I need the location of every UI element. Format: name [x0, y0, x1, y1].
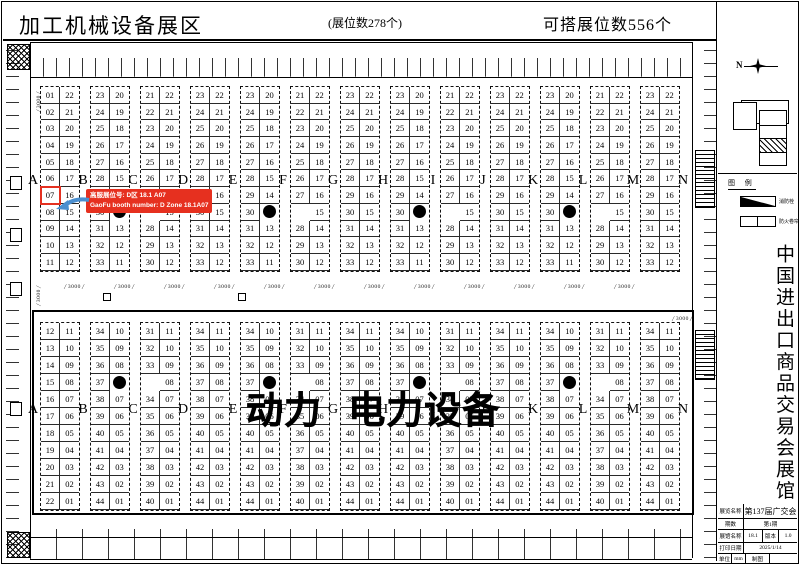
tb-label: 展馆名称: [718, 530, 744, 542]
tb-value: mm: [732, 554, 746, 564]
booth-cell: 19: [410, 104, 429, 121]
pillar-dot: [263, 205, 276, 218]
booth-cell: 14: [160, 221, 179, 238]
fire-hydrant-symbol: [740, 196, 776, 207]
booth-cell: 15: [660, 204, 679, 221]
booth-cell: [591, 204, 610, 221]
booth-cell: 26: [591, 170, 610, 187]
booth-cell: 26: [191, 137, 210, 154]
booth-cell: 23: [241, 87, 260, 104]
booth-cell: 20: [110, 87, 129, 104]
booth-cell: 29: [391, 187, 410, 204]
compass-star-icon: [750, 58, 766, 74]
booth-cell: 21: [660, 104, 679, 121]
booth-cell: [260, 204, 279, 221]
top-group-11: 2320241925182617271628152914303113321233…: [540, 86, 580, 272]
booth-cell: 20: [510, 120, 529, 137]
booth-cell: 19: [360, 137, 379, 154]
tb-value: 18.1: [744, 530, 763, 542]
top-group-13: 2322242125202619271828172916301531143213…: [640, 86, 680, 272]
booth-cell: 19: [610, 137, 629, 154]
booth-cell: 14: [260, 187, 279, 204]
booth-cell: 16: [410, 154, 429, 171]
dimension-label: 3000: [214, 284, 235, 290]
booth-cell: 11: [410, 254, 429, 271]
booth-cell: 25: [391, 120, 410, 137]
booth-cell: 16: [560, 154, 579, 171]
booth-cell: 20: [310, 120, 329, 137]
legend-item-label: 消防栓: [779, 198, 794, 205]
booth-cell: 15: [310, 204, 329, 221]
callout-line-cn: 高服展位号: D区 18.1 A07: [90, 191, 208, 201]
booth-cell: 20: [260, 87, 279, 104]
booth-cell: 19: [310, 137, 329, 154]
booth-cell: 23: [491, 87, 510, 104]
booth-cell: 23: [641, 87, 660, 104]
booth-count-label: (展位数278个): [328, 14, 402, 31]
booth-cell: 04: [41, 137, 60, 154]
booth-cell: 20: [660, 120, 679, 137]
booth-cell: 12: [560, 237, 579, 254]
fire-equipment-symbol: [103, 293, 111, 301]
booth-cell: 13: [310, 237, 329, 254]
booth-cell: 12: [310, 254, 329, 271]
dimension-label: 3000: [314, 284, 335, 290]
tb-label: 展览名称: [718, 504, 744, 518]
booth-cell: 25: [141, 154, 160, 171]
booth-cell: 23: [291, 120, 310, 137]
booth-cell: 21: [291, 87, 310, 104]
booth-cell: 13: [260, 221, 279, 238]
booth-cell: 29: [341, 187, 360, 204]
booth-cell: 28: [191, 170, 210, 187]
booth-cell: 16: [360, 187, 379, 204]
booth-cell: 33: [191, 254, 210, 271]
booth-cell: 20: [60, 120, 79, 137]
booth-cell: 22: [160, 87, 179, 104]
top-group-3: 2122222123202419251826172716152814291330…: [140, 86, 180, 272]
top-zone-letter-E: E: [225, 173, 241, 189]
booth-cell: 33: [641, 254, 660, 271]
booth-cell: 13: [560, 221, 579, 238]
dimension-label: 3000: [514, 284, 535, 290]
title-block-row: 展览名称 第137届广交会: [718, 504, 797, 519]
booth-cell: 30: [291, 254, 310, 271]
booth-cell: 24: [341, 104, 360, 121]
booth-cell: 13: [60, 237, 79, 254]
top-zone-letter-G: G: [325, 173, 341, 189]
booth-cell: 21: [360, 104, 379, 121]
booth-cell: 26: [91, 137, 110, 154]
booth-cell: 30: [491, 204, 510, 221]
booth-cell: 18: [60, 154, 79, 171]
booth-cell: 19: [210, 137, 229, 154]
top-group-4: 2322242125202619271828172916301531143213…: [190, 86, 230, 272]
booth-cell: 29: [141, 237, 160, 254]
booth-cell: 27: [441, 187, 460, 204]
top-group-2: 2320241925182617271628152914303113321233…: [90, 86, 130, 272]
booth-cell: 25: [341, 120, 360, 137]
tb-label: 打印日期: [718, 543, 744, 553]
booth-cell: 14: [560, 187, 579, 204]
booth-cell: 30: [591, 254, 610, 271]
booth-cell: 21: [210, 104, 229, 121]
booth-cell: 14: [660, 221, 679, 238]
dimension-label: 3000: [264, 284, 285, 290]
booth-cell: 12: [110, 237, 129, 254]
booth-cell: 19: [110, 104, 129, 121]
booth-cell: 27: [91, 154, 110, 171]
booth-cell: 14: [310, 221, 329, 238]
booth-cell: 25: [91, 120, 110, 137]
booth-cell: 18: [510, 154, 529, 171]
booth-cell: 19: [660, 137, 679, 154]
booth-cell: 24: [391, 104, 410, 121]
top-group-10: 2322242125202619271828172916301531143213…: [490, 86, 530, 272]
keyplan-hall-column: [759, 110, 787, 166]
booth-cell: 26: [291, 170, 310, 187]
booth-cell: 22: [360, 87, 379, 104]
booth-cell: 27: [291, 187, 310, 204]
tb-value: 2025/1/14: [744, 543, 797, 553]
booth-cell: 29: [641, 187, 660, 204]
booth-cell: 21: [60, 104, 79, 121]
booth-cell: 28: [591, 221, 610, 238]
booth-cell: 14: [510, 221, 529, 238]
booth-cell: 31: [641, 221, 660, 238]
booth-cell: 11: [110, 254, 129, 271]
keyplan-hall: [760, 152, 786, 166]
booth-cell: 09: [41, 221, 60, 238]
booth-cell: 12: [160, 254, 179, 271]
tb-value: [770, 554, 797, 564]
booth-cell: 33: [91, 254, 110, 271]
booth-cell: 20: [560, 87, 579, 104]
booth-cell: 28: [341, 170, 360, 187]
pillar-dot: [413, 205, 426, 218]
booth-cell: 29: [491, 187, 510, 204]
title-block: 展览名称 第137届广交会 期数 第1期 展馆名称 18.1 版本 1.0 打印…: [718, 504, 797, 562]
top-zone-letter-M: M: [625, 173, 641, 189]
booth-cell: 01: [41, 87, 60, 104]
booth-cell: 22: [441, 104, 460, 121]
booth-cell: 24: [541, 104, 560, 121]
booth-cell: 22: [510, 87, 529, 104]
booth-cell: 15: [510, 204, 529, 221]
dimension-label-vertical: 3000: [36, 91, 42, 112]
booth-cell: 27: [391, 154, 410, 171]
booth-cell: 23: [191, 87, 210, 104]
booth-cell: 14: [360, 221, 379, 238]
booth-cell: 32: [91, 237, 110, 254]
booth-cell: 20: [460, 120, 479, 137]
booth-cell: 25: [641, 120, 660, 137]
booth-cell: 32: [541, 237, 560, 254]
booth-cell: 26: [241, 137, 260, 154]
booth-cell: 24: [591, 137, 610, 154]
booth-cell: 23: [541, 87, 560, 104]
booth-cell: 16: [660, 187, 679, 204]
booth-cell: 18: [110, 120, 129, 137]
booth-cell: 26: [641, 137, 660, 154]
top-zone-letter-I: I: [425, 173, 441, 189]
dimension-label: 3000: [414, 284, 435, 290]
booth-cell: 24: [141, 137, 160, 154]
booth-cell: 29: [591, 237, 610, 254]
booth-cell: 27: [491, 154, 510, 171]
tb-value: 第137届广交会: [744, 504, 797, 518]
booth-cell: 13: [160, 237, 179, 254]
booth-cell: 12: [510, 254, 529, 271]
booth-cell: 18: [410, 120, 429, 137]
booth-cell: 32: [491, 237, 510, 254]
booth-cell: 28: [491, 170, 510, 187]
booth-cell: 31: [541, 221, 560, 238]
fire-shutter-symbol: [740, 216, 776, 227]
booth-cell: 12: [60, 254, 79, 271]
booth-cell: 21: [460, 104, 479, 121]
booth-cell: 14: [460, 221, 479, 238]
booth-cell: 24: [441, 137, 460, 154]
booth-cell: 15: [210, 204, 229, 221]
booth-cell: 21: [591, 87, 610, 104]
booth-cell: 14: [410, 187, 429, 204]
booth-cell: 15: [610, 204, 629, 221]
booth-cell: 26: [341, 137, 360, 154]
booth-cell: 17: [260, 137, 279, 154]
top-zone-letter-H: H: [375, 173, 391, 189]
booth-cell: 18: [360, 154, 379, 171]
booth-cell: 31: [91, 221, 110, 238]
booth-cell: 30: [241, 204, 260, 221]
booth-cell: 27: [191, 154, 210, 171]
tb-label: 期数: [718, 519, 744, 529]
booth-cell: 12: [460, 254, 479, 271]
booth-cell: 17: [110, 137, 129, 154]
title-block-row: 打印日期 2025/1/14: [718, 543, 797, 554]
booth-cell: 12: [660, 254, 679, 271]
booth-cell: 24: [241, 104, 260, 121]
booth-cell: 23: [441, 120, 460, 137]
floor-plan-drawing: 加工机械设备展区 (展位数278个) 可搭展位数556个 01220221032…: [0, 0, 800, 565]
booth-cell: 25: [541, 120, 560, 137]
booth-cell: 21: [610, 104, 629, 121]
top-group-8: 2320241925182617271628152914303113321233…: [390, 86, 430, 272]
booth-cell: 22: [591, 104, 610, 121]
booth-cell: 22: [660, 87, 679, 104]
booth-cell: 26: [391, 137, 410, 154]
legend-title: 图 例: [728, 178, 756, 190]
booth-cell: 13: [510, 237, 529, 254]
booth-cell: 16: [110, 154, 129, 171]
booth-cell: 19: [510, 137, 529, 154]
tb-value: 第1期: [744, 519, 797, 529]
booth-cell: 30: [141, 254, 160, 271]
buildable-count-label: 可搭展位数556个: [543, 11, 672, 35]
booth-cell: 27: [591, 187, 610, 204]
dimension-label-vertical: 3000: [36, 285, 42, 306]
booth-cell: 15: [460, 204, 479, 221]
booth-callout: 高服展位号: D区 18.1 A07 GaoFu booth number: D…: [86, 189, 212, 213]
fire-equipment-symbol: [238, 293, 246, 301]
booth-cell: 16: [510, 187, 529, 204]
keyplan-hall: [760, 111, 786, 125]
top-group-12: 2122222123202419251826172716152814291330…: [590, 86, 630, 272]
booth-cell: 29: [241, 187, 260, 204]
booth-cell: [441, 204, 460, 221]
booth-cell: 28: [391, 170, 410, 187]
booth-cell: [291, 204, 310, 221]
booth-cell: 18: [310, 154, 329, 171]
booth-cell: 18: [460, 154, 479, 171]
booth-cell: 23: [391, 87, 410, 104]
booth-cell: 21: [510, 104, 529, 121]
booth-cell: 18: [260, 120, 279, 137]
booth-cell: 14: [210, 221, 229, 238]
booth-cell: 20: [210, 120, 229, 137]
booth-cell: 33: [391, 254, 410, 271]
booth-cell: 13: [360, 237, 379, 254]
booth-cell: 16: [610, 187, 629, 204]
booth-cell: 03: [41, 120, 60, 137]
booth-cell: 11: [260, 254, 279, 271]
dimension-label: 3000: [164, 284, 185, 290]
dimension-label: 3000: [564, 284, 585, 290]
booth-cell: 28: [541, 170, 560, 187]
booth-cell: 31: [491, 221, 510, 238]
building-key-plan: [733, 92, 789, 168]
top-group-9: 2122222123202419251826172716152814291330…: [440, 86, 480, 272]
keyplan-block: [733, 102, 757, 130]
booth-cell: 21: [141, 87, 160, 104]
booth-cell: 29: [441, 237, 460, 254]
page-title: 加工机械设备展区: [19, 10, 203, 40]
booth-cell: 27: [341, 154, 360, 171]
booth-cell: [410, 204, 429, 221]
booth-cell: 13: [660, 237, 679, 254]
booth-cell: 18: [660, 154, 679, 171]
tb-label: 单位: [718, 554, 732, 564]
booth-cell: 27: [541, 154, 560, 171]
booth-cell: 11: [560, 254, 579, 271]
booth-cell: 27: [241, 154, 260, 171]
top-zone-letter-A: A: [25, 173, 41, 189]
callout-line-en: GaoFu booth number: D Zone 18.1A07: [90, 201, 208, 211]
top-zone-letter-D: D: [175, 173, 191, 189]
top-group-6: 2122222123202419251826172716152814291330…: [290, 86, 330, 272]
tb-value: 1.0: [779, 530, 797, 542]
booth-cell: 18: [560, 120, 579, 137]
booth-cell: 12: [360, 254, 379, 271]
booth-cell: 28: [91, 170, 110, 187]
booth-cell: 21: [310, 104, 329, 121]
booth-cell: 32: [191, 237, 210, 254]
booth-cell: 32: [341, 237, 360, 254]
booth-cell: 28: [441, 221, 460, 238]
booth-cell: 10: [41, 237, 60, 254]
booth-cell: 22: [60, 87, 79, 104]
booth-cell: 23: [141, 120, 160, 137]
booth-cell: 30: [441, 254, 460, 271]
booth-cell: 26: [541, 137, 560, 154]
booth-cell: 19: [60, 137, 79, 154]
title-block-row: 期数 第1期: [718, 519, 797, 530]
top-zone-letter-J: J: [475, 173, 491, 189]
booth-cell: 11: [41, 254, 60, 271]
dimension-label: 3000: [114, 284, 135, 290]
booth-cell: 16: [460, 187, 479, 204]
booth-cell: 27: [641, 154, 660, 171]
booth-cell: 16: [310, 187, 329, 204]
booth-cell: [560, 204, 579, 221]
booth-cell: 22: [291, 104, 310, 121]
booth-cell: 23: [91, 87, 110, 104]
booth-cell: 18: [160, 154, 179, 171]
booth-cell: 33: [341, 254, 360, 271]
booth-cell: 26: [491, 137, 510, 154]
booth-cell: 24: [91, 104, 110, 121]
booth-cell: 12: [260, 237, 279, 254]
top-zone-letter-N: N: [675, 173, 691, 189]
booth-cell: 14: [60, 221, 79, 238]
booth-cell: 05: [41, 154, 60, 171]
title-block-row: 单位 mm 制图: [718, 554, 797, 564]
keyplan-hall: [760, 125, 786, 139]
keyplan-current-hall: [760, 138, 786, 152]
booth-cell: 33: [491, 254, 510, 271]
booth-cell: 31: [391, 221, 410, 238]
booth-cell: 13: [610, 237, 629, 254]
booth-cell: 25: [591, 154, 610, 171]
booth-cell: 31: [341, 221, 360, 238]
booth-cell: 24: [641, 104, 660, 121]
booth-cell: 22: [310, 87, 329, 104]
booth-cell: 24: [191, 104, 210, 121]
power-zone-label: 动力 电力设备: [246, 380, 500, 434]
booth-cell: 13: [410, 221, 429, 238]
booth-cell: 32: [241, 237, 260, 254]
booth-cell: 21: [160, 104, 179, 121]
booth-cell: 33: [241, 254, 260, 271]
north-compass: N: [736, 56, 780, 76]
top-zone-letter-C: C: [125, 173, 141, 189]
booth-cell: 20: [610, 120, 629, 137]
booth-cell: 12: [210, 254, 229, 271]
booth-cell: 22: [610, 87, 629, 104]
booth-cell: 26: [141, 170, 160, 187]
top-group-5: 2320241925182617271628152914303113321233…: [240, 86, 280, 272]
booth-cell: 02: [41, 104, 60, 121]
booth-cell: 32: [391, 237, 410, 254]
booth-cell: 20: [410, 87, 429, 104]
booth-cell: 28: [141, 221, 160, 238]
booth-cell: 20: [360, 120, 379, 137]
booth-cell: 31: [191, 221, 210, 238]
booth-cell: 17: [560, 137, 579, 154]
booth-cell: 17: [410, 137, 429, 154]
booth-cell: 22: [460, 87, 479, 104]
booth-cell: 30: [391, 204, 410, 221]
booth-cell: 18: [610, 154, 629, 171]
callout-arrow-icon: [56, 196, 90, 216]
booth-cell: 28: [241, 170, 260, 187]
legend-item-label: 防火卷帘: [779, 218, 799, 225]
top-zone-letter-B: B: [75, 173, 91, 189]
booth-cell: 29: [541, 187, 560, 204]
booth-cell: 30: [641, 204, 660, 221]
booth-cell: 25: [191, 120, 210, 137]
booth-cell: 25: [441, 154, 460, 171]
